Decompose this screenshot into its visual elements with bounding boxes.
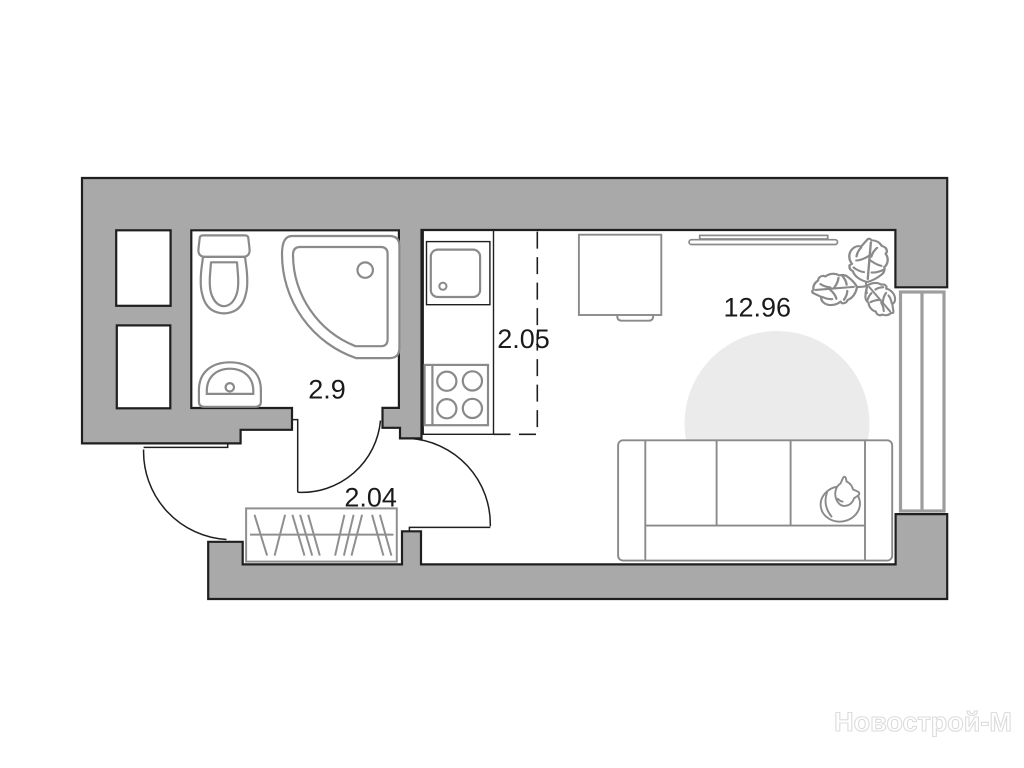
svg-text:2.04: 2.04 (344, 482, 397, 512)
svg-text:2.05: 2.05 (497, 324, 550, 354)
svg-text:2.9: 2.9 (308, 375, 346, 405)
svg-text:12.96: 12.96 (724, 293, 792, 323)
svg-text:Новострой-М: Новострой-М (834, 707, 1012, 737)
